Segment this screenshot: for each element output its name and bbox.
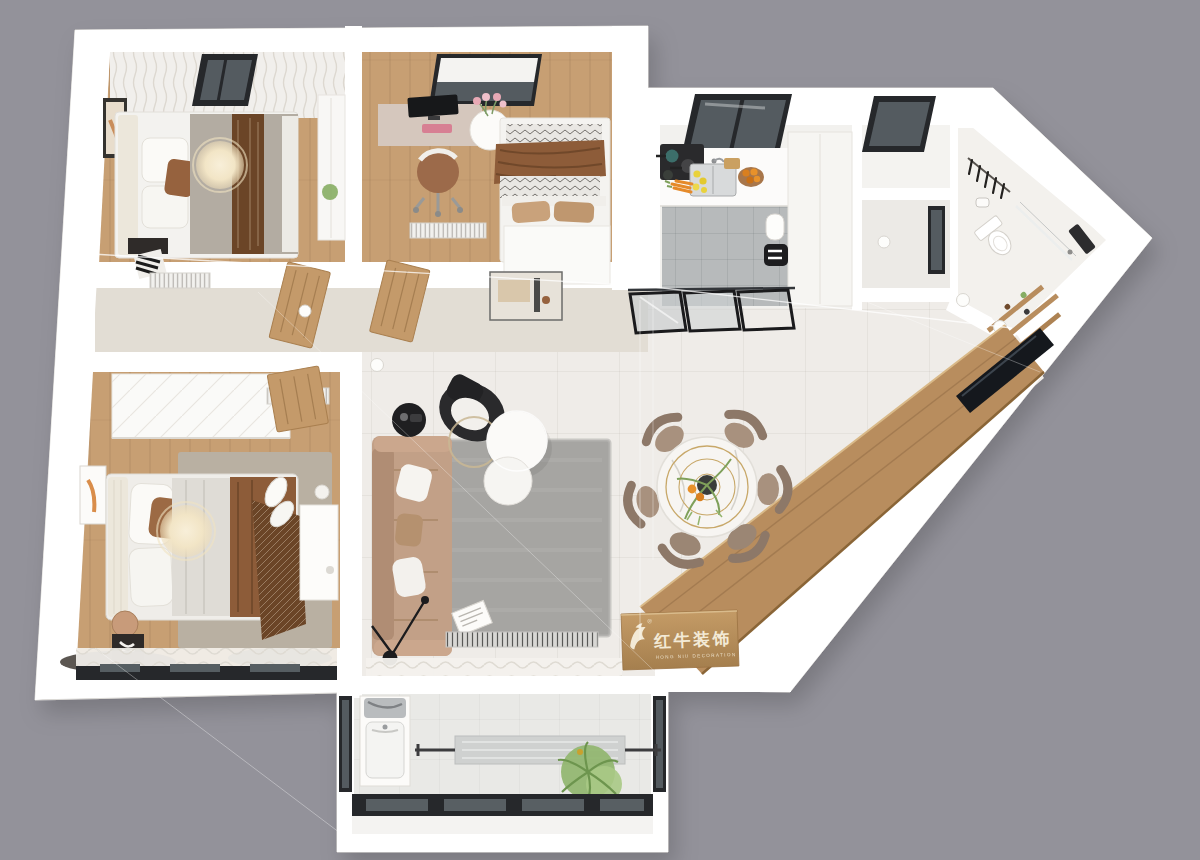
master-door	[267, 366, 328, 432]
bed-runner	[232, 114, 264, 254]
pillow	[554, 201, 595, 223]
pendant-lamp	[160, 505, 212, 557]
bowl	[663, 170, 673, 180]
side-table	[392, 403, 426, 437]
pillow	[394, 513, 423, 548]
balcony-windows	[352, 794, 653, 834]
pendant-light	[957, 294, 970, 307]
headboard	[108, 477, 128, 617]
laundry-sink	[360, 696, 410, 786]
cutting-board	[724, 158, 740, 169]
pendant-light	[299, 305, 311, 317]
keyboard	[422, 124, 452, 133]
dining-table	[657, 437, 757, 537]
pendant-lamp	[196, 141, 244, 189]
bedroom1-bed	[115, 112, 298, 258]
plant-icon	[322, 184, 338, 200]
paper-towel	[766, 214, 784, 240]
bedroom1-wardrobe	[318, 95, 345, 240]
utility-window	[862, 96, 936, 152]
master-art-frame	[80, 466, 106, 524]
brand-logo: ® 红牛装饰 HONG NIU DECORATION	[621, 610, 739, 670]
master-wardrobe	[112, 374, 290, 438]
balcony-door-curtain	[366, 658, 622, 676]
pillow	[511, 201, 550, 224]
pendant-light	[371, 359, 384, 372]
floorplan-render: ® 红牛装饰 HONG NIU DECORATION	[0, 0, 1200, 860]
headboard	[118, 115, 138, 255]
logo-registered: ®	[647, 618, 652, 624]
floorplan-canvas: ® 红牛装饰 HONG NIU DECORATION	[0, 0, 1200, 860]
striped-mat	[446, 632, 598, 647]
hallway-floor	[95, 286, 648, 352]
coffee-machine	[764, 244, 788, 266]
bedroom1-window	[192, 54, 258, 106]
monitor	[407, 94, 458, 117]
bedroom2-ac-vent	[410, 223, 486, 238]
pillow	[129, 547, 174, 607]
logo-text-zh: 红牛装饰	[653, 629, 733, 651]
bedroom1-ac-vent	[150, 273, 210, 288]
toilet-paper-holder	[976, 198, 989, 207]
fruit-bowl	[738, 167, 764, 187]
pendant-light	[878, 236, 890, 248]
